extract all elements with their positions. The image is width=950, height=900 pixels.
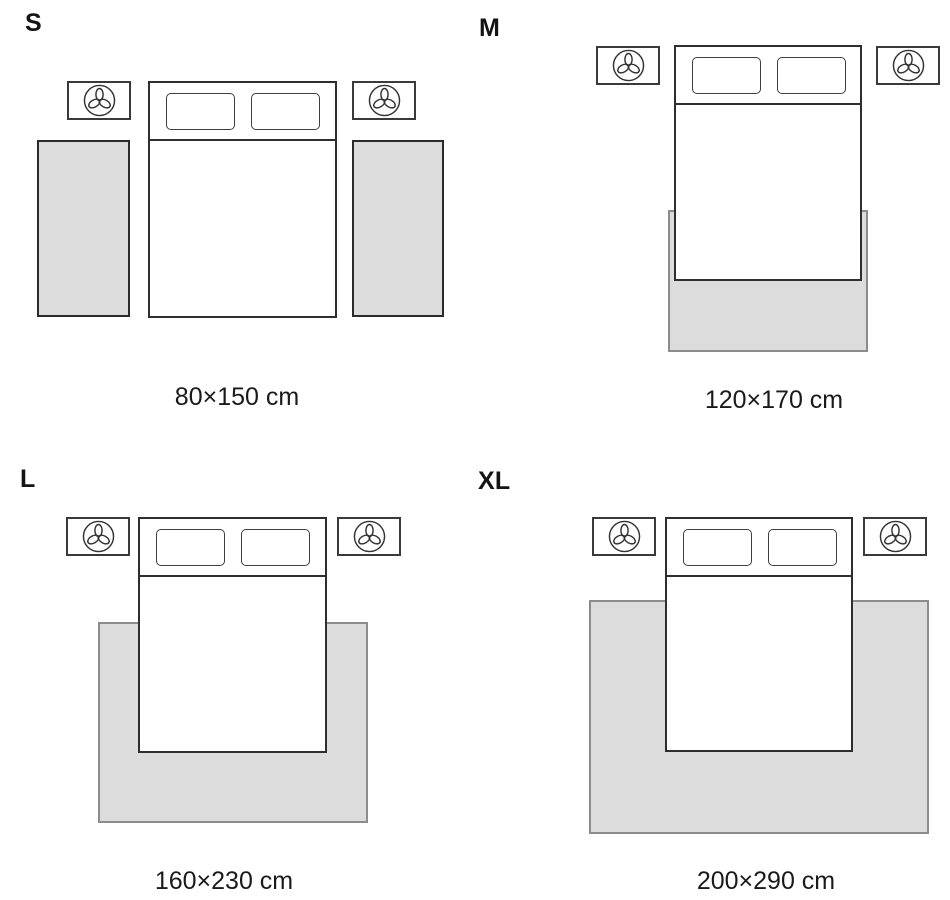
size-label-m: M [479,14,500,43]
plant-icon [879,520,912,553]
size-option-m: M 120×170 cm [475,0,950,450]
plant-icon [608,520,641,553]
size-option-s: S 80×150 cm [0,0,475,450]
nightstand-right [352,81,416,120]
bed [674,45,862,281]
bed-headboard [667,519,851,577]
bed-headboard [140,519,325,577]
bed-headboard [150,83,335,141]
plant-icon [892,49,925,82]
size-dimensions-xl: 200×290 cm [646,867,886,896]
plant-icon [82,520,115,553]
pillow-right [777,57,846,94]
bed [148,81,337,318]
pillow-left [156,529,225,566]
rug-runner-right [352,140,444,317]
pillow-left [692,57,761,94]
size-dimensions-m: 120×170 cm [654,386,894,415]
nightstand-left [592,517,656,556]
nightstand-right [337,517,401,556]
plant-icon [353,520,386,553]
size-label-xl: XL [478,467,510,496]
pillow-left [683,529,752,566]
pillow-right [251,93,320,130]
pillow-right [768,529,837,566]
bed [138,517,327,753]
size-dimensions-s: 80×150 cm [117,383,357,412]
bed [665,517,853,752]
size-dimensions-l: 160×230 cm [104,867,344,896]
nightstand-left [66,517,130,556]
rug-size-guide-diagram: S 80×150 cm [0,0,950,900]
size-label-s: S [25,9,42,38]
nightstand-right [876,46,940,85]
nightstand-right [863,517,927,556]
rug-runner-left [37,140,130,317]
pillow-right [241,529,310,566]
nightstand-left [67,81,131,120]
size-label-l: L [20,465,35,494]
pillow-left [166,93,235,130]
nightstand-left [596,46,660,85]
size-option-xl: XL 200×290 cm [475,450,950,900]
bed-headboard [676,47,860,105]
plant-icon [368,84,401,117]
size-option-l: L 160×230 cm [0,450,475,900]
plant-icon [612,49,645,82]
plant-icon [83,84,116,117]
